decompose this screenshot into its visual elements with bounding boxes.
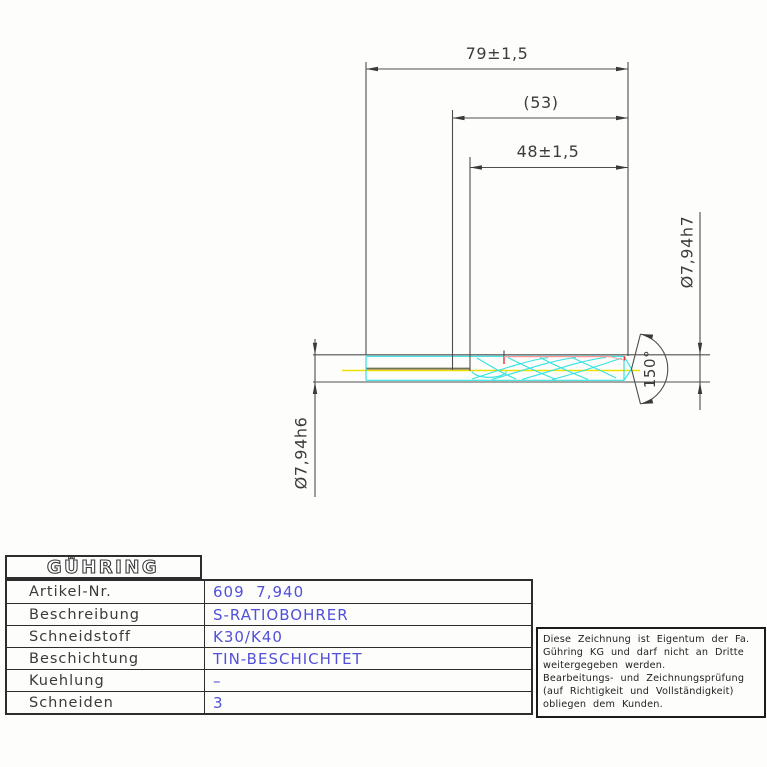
notice-line: Gühring KG und darf nicht an Dritte xyxy=(543,646,759,659)
row-value: S-RATIOBOHRER xyxy=(204,604,531,625)
table-row: Beschichtung TIN-BESCHICHTET xyxy=(7,647,531,669)
dim-text-flute-length: 48±1,5 xyxy=(517,142,580,161)
table-row: Artikel-Nr. 609 7,940 xyxy=(7,581,531,603)
row-value: K30/K40 xyxy=(204,626,531,647)
row-label: Schneidstoff xyxy=(7,626,204,647)
notice-line: (auf Richtigkeit und Vollständigkeit) xyxy=(543,685,759,698)
article-info-table: Artikel-Nr. 609 7,940 Beschreibung S-RAT… xyxy=(5,579,533,715)
flute-spirals xyxy=(472,358,622,380)
guehring-logo: GÜHRING xyxy=(7,557,200,577)
row-label: Beschreibung xyxy=(7,604,204,625)
row-label: Beschichtung xyxy=(7,648,204,669)
length-dimensions xyxy=(366,67,628,170)
table-row: Schneidstoff K30/K40 xyxy=(7,625,531,647)
notice-line: Diese Zeichnung ist Eigentum der Fa. xyxy=(543,633,759,646)
ownership-notice-box: Diese Zeichnung ist Eigentum der Fa. Güh… xyxy=(536,627,766,718)
row-label: Kuehlung xyxy=(7,670,204,691)
dim-text-shank-diameter: Ø7,94h6 xyxy=(292,417,311,490)
dim-text-point-angle: 150° xyxy=(641,350,659,389)
logo-box: GÜHRING xyxy=(5,555,202,579)
table-row: Kuehlung – xyxy=(7,669,531,691)
table-row: Schneiden 3 xyxy=(7,691,531,713)
notice-line: weitergegeben werden. xyxy=(543,659,759,672)
notice-line: Bearbeitungs- und Zeichnungsprüfung xyxy=(543,672,759,685)
row-label: Schneiden xyxy=(7,692,204,713)
row-value: – xyxy=(204,670,531,691)
guehring-logo-text: GÜHRING xyxy=(47,557,159,577)
row-label: Artikel-Nr. xyxy=(7,581,204,603)
dim-text-flute-diameter: Ø7,94h7 xyxy=(678,216,697,289)
row-value: TIN-BESCHICHTET xyxy=(204,648,531,669)
notice-line: obliegen dem Kunden. xyxy=(543,698,759,711)
dim-text-overall-length: 79±1,5 xyxy=(466,44,529,63)
row-value: 3 xyxy=(204,692,531,713)
table-row: Beschreibung S-RATIOBOHRER xyxy=(7,603,531,625)
drill-body xyxy=(342,356,640,380)
extension-lines xyxy=(313,62,710,382)
dim-text-intermediate-length: (53) xyxy=(523,93,558,112)
technical-drawing-page: 79±1,5 (53) 48±1,5 Ø7,94h7 Ø7,94h6 150° … xyxy=(0,0,767,767)
row-value: 609 7,940 xyxy=(204,581,531,603)
